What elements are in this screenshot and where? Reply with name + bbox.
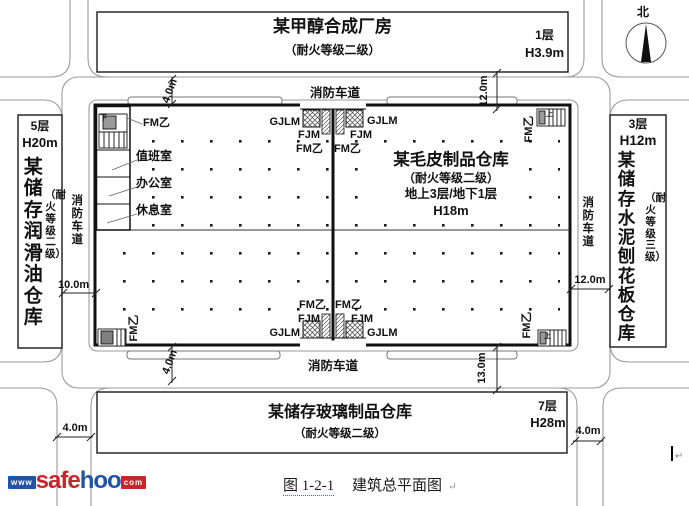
main-building-outline (95, 105, 570, 345)
main-building-storeys: 地上3层/地下1层 (375, 188, 527, 202)
building-right-rating: （耐火等级三级） (645, 193, 656, 264)
fire-lane-label-left: 消防车道 (71, 195, 83, 247)
fire-shutter-top-left (303, 110, 320, 127)
main-building-rating: （耐火等级二级） (375, 172, 527, 185)
building-top-name: 某甲醇合成厂房 (97, 18, 568, 37)
figure-caption-number: 图 1-2-1 (283, 478, 334, 496)
room-label-duty: 值班室 (136, 150, 172, 163)
stair-symbol-bottom-left (98, 329, 126, 346)
building-top-height: H3.9m (512, 46, 577, 60)
logo-safe-text: safe (36, 469, 80, 493)
building-bottom-floors: 7层 (520, 400, 575, 413)
logo-com-tile: com (121, 476, 146, 489)
fire-door-bottom-left (322, 314, 330, 338)
building-left-name: 某储存润滑油仓库 (23, 157, 44, 329)
building-bottom-name: 某储存玻璃制品仓库 (130, 404, 550, 422)
fire-shutter-top-right (346, 110, 363, 127)
figure-caption: 图 1-2-1 建筑总平面图 ↵ (283, 474, 457, 495)
building-left-floors: 5层 (18, 120, 62, 133)
door-label-fjm-bottom-right: FJM (351, 313, 373, 325)
door-label-fmb-corner-bottom-left: FM乙 (127, 308, 141, 348)
building-left-height: H20m (16, 136, 64, 150)
door-label-fjm-bottom-left: FJM (294, 313, 320, 325)
stair-mark-down: 下 (100, 115, 107, 123)
dimension-left-gap: 10.0m (58, 279, 89, 291)
logo-hoo-text: hoo (80, 469, 121, 493)
logo-www-tile: www (8, 476, 36, 489)
stair-symbol-bottom-right (538, 330, 566, 346)
door-label-fjm-top-right: FJM (350, 129, 372, 141)
fire-door-bottom-right (336, 314, 344, 338)
fire-lane-label-right: 消防车道 (582, 197, 594, 249)
door-label-fmb-top-right: FM乙 (334, 143, 361, 155)
door-label-gjlm-bottom-right: GJLM (367, 327, 398, 339)
room-label-office: 办公室 (136, 177, 172, 190)
door-label-fmb-top-left: FM乙 (296, 143, 323, 155)
building-right-floors: 3层 (612, 118, 664, 131)
building-bottom-rating: （耐火等级二级） (130, 428, 550, 441)
site-plan-page: 某甲醇合成厂房 （耐火等级二级） 1层 H3.9m 北 5层 H20m 某储存润… (0, 0, 689, 506)
dimension-road-bottom-left: 4.0m (54, 422, 96, 434)
building-right-height: H12m (610, 134, 666, 149)
fire-door-top-right (336, 110, 344, 134)
door-label-fmb-bottom-left: FM乙 (299, 299, 326, 311)
main-building-name: 某毛皮制品仓库 (375, 151, 527, 169)
room-label-rest: 休息室 (136, 204, 172, 217)
logo-safehoo: www safe hoo com (8, 469, 146, 493)
fire-door-top-left (322, 110, 330, 134)
door-label-fmb-corner-bottom-right: FM乙 (520, 305, 534, 345)
north-label: 北 (637, 6, 649, 19)
stair-mark-up-bottom-right: 上 (544, 333, 551, 341)
door-label-fmb-corner-top-right: FM乙 (522, 109, 536, 149)
text-cursor (671, 446, 673, 461)
fire-lane-label-top: 消防车道 (290, 87, 380, 101)
building-left-rating: （耐火等级二级） (45, 190, 56, 261)
door-label-fjm-top-left: FJM (294, 129, 320, 141)
paragraph-mark-cursor: ↵ (675, 451, 683, 462)
north-arrow-icon (626, 23, 666, 63)
dimension-top-right-gap: 12.0m (477, 71, 491, 111)
stair-mark-up-top-right: 上 (546, 111, 553, 119)
door-label-gjlm-bottom-left: GJLM (260, 327, 300, 339)
door-label-fmb-stair-top-left: FM乙 (143, 117, 170, 129)
building-top-rating: （耐火等级二级） (97, 44, 568, 57)
door-label-gjlm-top-left: GJLM (260, 116, 300, 128)
door-label-gjlm-top-right: GJLM (367, 115, 398, 127)
paragraph-mark: ↵ (448, 481, 457, 493)
figure-caption-title: 建筑总平面图 (352, 478, 442, 494)
fire-lane-label-bottom: 消防车道 (288, 360, 378, 374)
building-bottom-outline (97, 392, 567, 453)
building-top-floors: 1层 (517, 29, 572, 42)
building-right-name: 某储存水泥刨花板仓库 (617, 151, 636, 344)
dimension-right-gap: 12.0m (570, 274, 610, 286)
dimension-road-bottom-right: 4.0m (567, 425, 609, 437)
main-building-height: H18m (375, 204, 527, 218)
door-label-fmb-bottom-right: FM乙 (335, 299, 362, 311)
dimension-bottom-right-gap: 13.0m (475, 346, 489, 390)
